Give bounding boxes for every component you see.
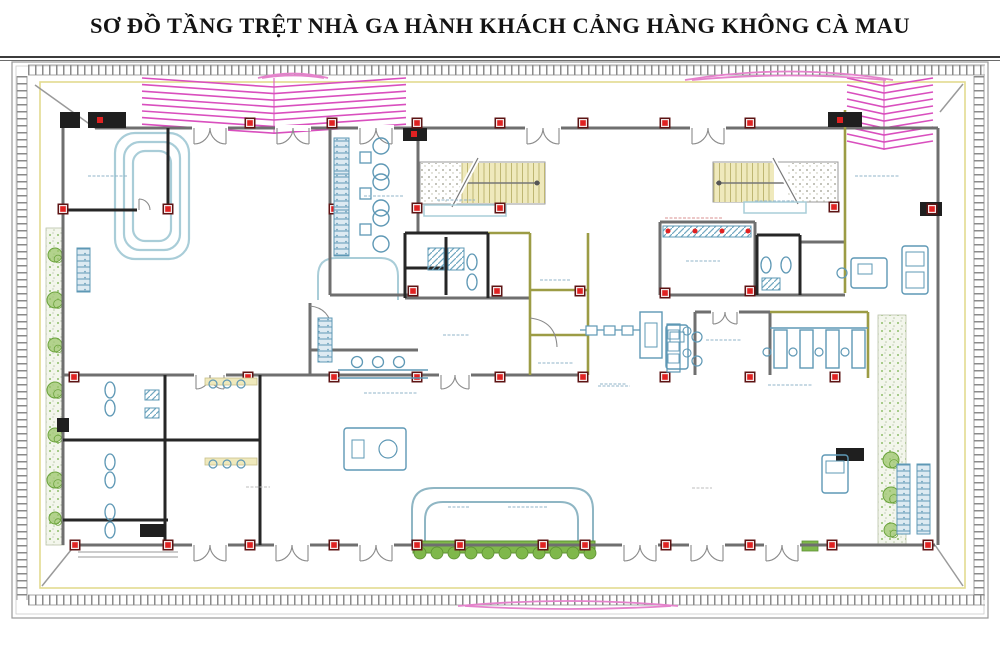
column-marker <box>830 372 841 383</box>
xray-machine <box>640 312 662 358</box>
checkin-booth <box>852 330 865 368</box>
walls-olive <box>488 110 868 378</box>
chevron-stripe <box>847 134 933 142</box>
hedge-bush <box>431 547 443 559</box>
corner-diagonal <box>940 84 963 112</box>
booth-chair <box>789 348 797 356</box>
belt-tray <box>622 326 633 335</box>
column-marker <box>245 540 256 551</box>
hedge-bush <box>567 547 579 559</box>
hedge-bush <box>550 547 562 559</box>
seat-row <box>77 248 90 292</box>
belt-tray <box>604 326 615 335</box>
plant-blob <box>48 338 62 352</box>
counter-post <box>720 229 725 234</box>
column-marker <box>245 118 256 129</box>
toilet-fixture <box>105 522 115 538</box>
hedge-bush <box>499 547 511 559</box>
toilet-fixture <box>105 400 115 416</box>
seat-row <box>897 464 910 534</box>
column-marker <box>163 204 174 215</box>
column-marker <box>829 202 840 213</box>
chevron-stripe <box>847 92 933 100</box>
round-table <box>373 210 389 226</box>
canopy-outline <box>425 502 578 545</box>
column-marker <box>745 286 756 297</box>
column-marker <box>495 203 506 214</box>
column-marker <box>408 286 419 297</box>
column-marker <box>329 372 340 383</box>
column-marker <box>495 372 506 383</box>
counter-post <box>666 229 671 234</box>
plant-blob <box>48 248 62 262</box>
column-marker <box>578 118 589 129</box>
column-marker <box>660 118 671 129</box>
hedge-bush <box>482 547 494 559</box>
round-table <box>373 164 389 180</box>
chevron-stripe <box>847 85 933 93</box>
column-marker <box>745 372 756 383</box>
toilet-fixture <box>761 257 771 273</box>
toilet-fixture <box>105 382 115 398</box>
baggage-carousel <box>115 133 189 259</box>
round-table <box>373 138 389 154</box>
room-labels <box>88 176 899 507</box>
toilet-fixture <box>105 454 115 470</box>
checkin-booth <box>800 330 813 368</box>
column-marker <box>660 288 671 299</box>
booth-chair <box>815 348 823 356</box>
column-marker <box>660 372 671 383</box>
checkin-booth <box>826 330 839 368</box>
column-marker <box>538 540 549 551</box>
seat-row <box>318 318 332 362</box>
column-marker <box>327 118 338 129</box>
drawing-sheet: SƠ ĐỒ TẦNG TRỆT NHÀ GA HÀNH KHÁCH CẢNG H… <box>0 0 1000 661</box>
column-marker <box>70 540 81 551</box>
round-table <box>373 236 389 252</box>
stool <box>373 357 384 368</box>
chair <box>379 440 397 458</box>
wall-block <box>60 112 80 128</box>
column-marker <box>661 540 672 551</box>
toilet-fixture <box>105 472 115 488</box>
chevron-stripe <box>847 99 933 107</box>
hedge-bush <box>516 547 528 559</box>
toilet-fixture <box>105 504 115 520</box>
column-marker <box>827 540 838 551</box>
stool <box>352 357 363 368</box>
toilet-fixtures <box>105 248 791 538</box>
hedge-bush <box>465 547 477 559</box>
column-marker <box>927 204 938 215</box>
checkin-counter <box>663 226 751 237</box>
washstand <box>428 248 444 270</box>
column-marker <box>58 204 69 215</box>
door-swing <box>530 318 557 347</box>
column-marker <box>580 540 591 551</box>
column-marker <box>412 540 423 551</box>
column-marker <box>69 372 80 383</box>
corner-diagonal <box>935 545 963 586</box>
cafe-table <box>360 188 371 199</box>
column-marker <box>745 540 756 551</box>
washstand <box>448 248 464 270</box>
toilet-fixture <box>781 257 791 273</box>
column-marker <box>455 540 466 551</box>
column-marker <box>329 540 340 551</box>
seat-row <box>334 210 349 256</box>
checkin-booth <box>774 330 787 368</box>
awning-arcs <box>258 72 893 610</box>
canopy-outline <box>412 488 593 545</box>
counter-band <box>663 226 751 237</box>
security-scanner <box>580 312 691 372</box>
column-marker <box>495 118 506 129</box>
toilet-fixture <box>467 254 477 270</box>
stool <box>394 357 405 368</box>
toilet-fixture <box>467 274 477 290</box>
awning-arc <box>262 76 324 79</box>
counter-post <box>746 229 751 234</box>
desk <box>851 258 887 288</box>
counter-post <box>693 229 698 234</box>
scanner-console <box>667 324 680 372</box>
column-marker <box>412 203 423 214</box>
washstand <box>145 390 159 400</box>
carousel-loop <box>133 151 171 241</box>
entry-steps <box>78 552 178 557</box>
column-marker <box>492 286 503 297</box>
column-marker <box>412 372 423 383</box>
column-marker <box>578 372 589 383</box>
plant-blob <box>884 523 898 537</box>
entrance-canopy <box>318 258 593 545</box>
round-table <box>373 174 389 190</box>
belt-tray <box>586 326 597 335</box>
wall-block <box>828 112 862 127</box>
washstand <box>145 408 159 418</box>
washstand <box>762 278 780 290</box>
floor-plan-canvas <box>0 0 1000 661</box>
column-marker <box>412 118 423 129</box>
corner-diagonal <box>42 545 75 586</box>
booth-chair <box>841 348 849 356</box>
canopy-chevron-hatch <box>142 78 933 150</box>
wall-block <box>140 524 166 537</box>
column-marker <box>575 286 586 297</box>
title-rules <box>0 57 1000 61</box>
round-table <box>373 200 389 216</box>
cafe-table <box>360 224 371 235</box>
column-marker <box>745 118 756 129</box>
seat-row <box>917 464 930 534</box>
cafe-table <box>360 152 371 163</box>
staircases <box>420 158 838 216</box>
wall-block <box>57 418 69 432</box>
column-marker <box>923 540 934 551</box>
wall-block <box>88 112 126 128</box>
awning-arc <box>465 606 671 609</box>
chevron-stripe <box>847 141 933 149</box>
column-marker <box>163 540 174 551</box>
